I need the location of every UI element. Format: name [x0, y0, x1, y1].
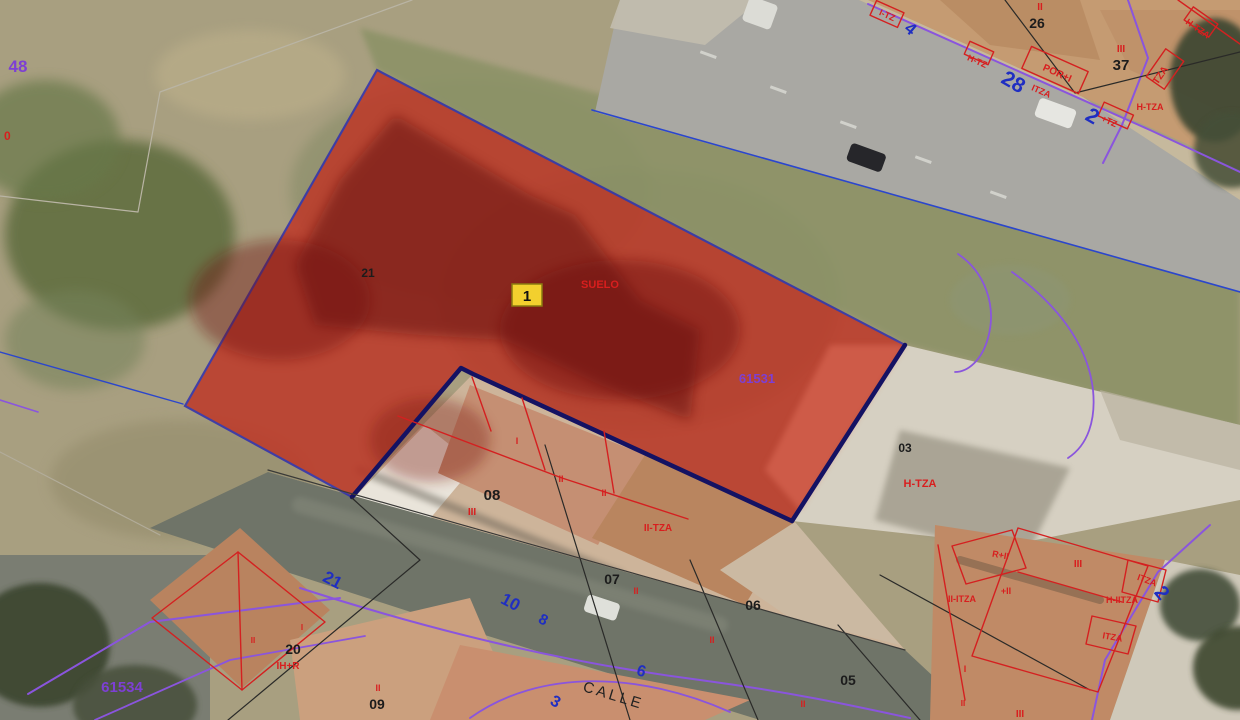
label-block-61534: 61534 — [101, 679, 143, 696]
label-floors: II — [251, 636, 255, 645]
label-ii-itza: II-ITZA — [948, 594, 976, 604]
label-parcel-21: 21 — [361, 266, 375, 280]
label-floors: II — [961, 699, 965, 708]
parcel-dark-vegetation — [370, 398, 490, 482]
label-block-48: 48 — [9, 57, 28, 76]
label-floors: II — [709, 635, 714, 645]
cadastral-map-view: 21 26 37 03 08 07 06 05 09 20 61531 6153… — [0, 0, 1240, 720]
label-floors: III — [468, 507, 477, 518]
label-parcel-26: 26 — [1029, 15, 1045, 31]
label-parcel-37: 37 — [1113, 57, 1130, 74]
label-parcel-06: 06 — [745, 597, 761, 613]
map-canvas: 21 26 37 03 08 07 06 05 09 20 61531 6153… — [0, 0, 1240, 720]
label-parcel-08: 08 — [484, 487, 501, 504]
scrub-patch — [950, 265, 1070, 335]
label-h-iitza: H-IITZA — [1106, 595, 1138, 605]
label-floors: III — [1016, 709, 1025, 720]
dirt-patch — [155, 30, 345, 120]
label-parcel-07: 07 — [604, 571, 620, 587]
label-block-61531: 61531 — [739, 371, 775, 386]
parcel-dark-vegetation — [500, 260, 740, 400]
label-suelo: SUELO — [581, 279, 619, 291]
label-floors: I — [964, 664, 967, 674]
label-parcel-05: 05 — [840, 672, 856, 688]
label-parcel-03: 03 — [898, 441, 912, 455]
label-ihr-20: IH+R — [276, 661, 300, 672]
label-floors: I — [516, 436, 519, 446]
label-parcel-09: 09 — [369, 696, 385, 712]
label-floors: II — [375, 683, 380, 693]
label-floors: III — [1074, 559, 1083, 570]
label-parcel-20: 20 — [285, 641, 301, 657]
label-floors: II — [601, 488, 606, 498]
label-floors: I — [301, 623, 303, 632]
label-floors: II — [800, 699, 805, 709]
label-floors: II — [558, 474, 563, 484]
badge-number: 1 — [523, 288, 531, 305]
selection-badge[interactable]: 1 — [512, 284, 542, 306]
parcel-dark-vegetation — [190, 240, 370, 360]
label-iitza-mid: II-TZA — [644, 523, 672, 534]
label-htza-right: H-TZA — [1137, 102, 1164, 112]
label-floors: III — [1117, 44, 1126, 55]
label-plus-ii: +II — [1001, 586, 1011, 596]
label-edge-0: 0 — [4, 129, 11, 143]
label-floors: II — [633, 586, 638, 596]
label-floors: II — [1037, 2, 1043, 13]
scrub-patch — [5, 290, 145, 390]
label-htza-03: H-TZA — [904, 478, 937, 490]
